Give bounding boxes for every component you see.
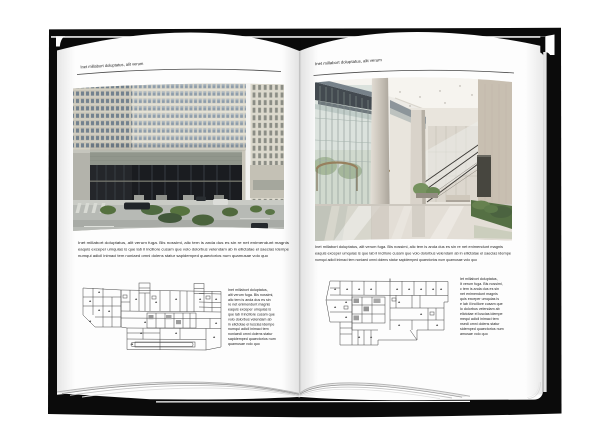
svg-text:sapidemped quaectorios num: sapidemped quaectorios num bbox=[228, 337, 276, 341]
svg-text:volo dolorbus velendam ab: volo dolorbus velendam ab bbox=[228, 317, 272, 321]
svg-text:net enimendunt magnis: net enimendunt magnis bbox=[460, 292, 498, 296]
svg-text:amusae volo quo: amusae volo quo bbox=[460, 332, 488, 336]
svg-text:elictotae el luscias idempe: elictotae el luscias idempe bbox=[460, 312, 503, 316]
svg-text:alit verum fuga. Bis nossimi,: alit verum fuga. Bis nossimi, bbox=[228, 293, 273, 297]
svg-text:Inet millabort doluptatus,: Inet millabort doluptatus, bbox=[228, 288, 268, 292]
svg-text:sidemped quaectorios num: sidemped quaectorios num bbox=[460, 327, 504, 331]
svg-text:Inet millabort doluptatus, ali: Inet millabort doluptatus, alit verum fu… bbox=[78, 240, 289, 245]
svg-text:Iet millabort doluptatus,: Iet millabort doluptatus, bbox=[460, 277, 498, 281]
svg-text:eaquis exceper umquias is: eaquis exceper umquias is bbox=[228, 308, 271, 312]
svg-text:quamusae volo quo: quamusae volo quo bbox=[228, 342, 260, 346]
svg-text:eaquis exceper umquias is que: eaquis exceper umquias is que lab il inc… bbox=[78, 247, 289, 252]
svg-text:numqui adicil inimaci tem noni: numqui adicil inimaci tem noniaed omni d… bbox=[315, 257, 477, 262]
svg-text:que lab il incillore cusam que: que lab il incillore cusam que bbox=[228, 313, 275, 317]
svg-text:noniaedi omni dolens statur: noniaedi omni dolens statur bbox=[228, 332, 273, 336]
svg-text:c tem is anda dus es sin: c tem is anda dus es sin bbox=[460, 287, 499, 291]
svg-text:re net enimendunt magnis: re net enimendunt magnis bbox=[228, 303, 270, 307]
svg-text:nsedi omni dolens statur: nsedi omni dolens statur bbox=[460, 322, 500, 326]
svg-text:eaquis exceper umquias is que: eaquis exceper umquias is que lab il inc… bbox=[315, 251, 511, 256]
svg-text:lo dolorbus velendam ab: lo dolorbus velendam ab bbox=[460, 307, 500, 311]
svg-text:alic tem is anda dus es sin: alic tem is anda dus es sin bbox=[228, 298, 271, 302]
svg-text:numqui adicil inimaci tem: numqui adicil inimaci tem bbox=[228, 327, 269, 331]
svg-text:mequi adicil inimaci tem: mequi adicil inimaci tem bbox=[460, 317, 499, 321]
svg-text:Inet millabort doluptatus, ali: Inet millabort doluptatus, alit verum fu… bbox=[315, 244, 503, 249]
svg-text:numqui adicil inimaci tem noni: numqui adicil inimaci tem noniaed omni d… bbox=[78, 253, 268, 258]
svg-text:It verum fuga. Bis nossimi,: It verum fuga. Bis nossimi, bbox=[460, 282, 503, 286]
svg-text:e lab il incillore cusam que: e lab il incillore cusam que bbox=[460, 302, 503, 306]
svg-text:in elictotae el luscias idempe: in elictotae el luscias idempe bbox=[228, 322, 274, 326]
svg-text:quis exceper umquias is: quis exceper umquias is bbox=[460, 297, 499, 301]
